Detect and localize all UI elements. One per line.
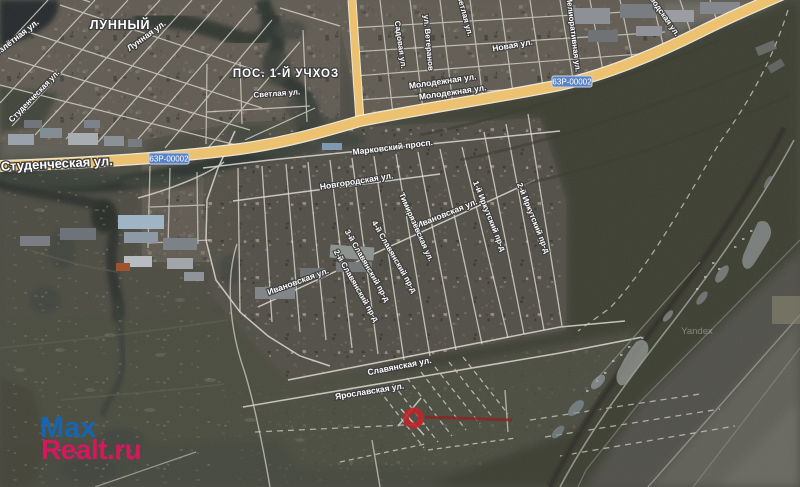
svg-text:ЛУННЫЙ: ЛУННЫЙ [90, 17, 151, 32]
svg-text:63Р-00002: 63Р-00002 [149, 155, 189, 164]
svg-text:Yandex: Yandex [681, 326, 713, 337]
svg-text:ПОС. 1-Й УЧХОЗ: ПОС. 1-Й УЧХОЗ [233, 67, 339, 80]
svg-text:Realt.ru: Realt.ru [41, 434, 141, 465]
svg-text:63Р-00002: 63Р-00002 [552, 78, 592, 87]
